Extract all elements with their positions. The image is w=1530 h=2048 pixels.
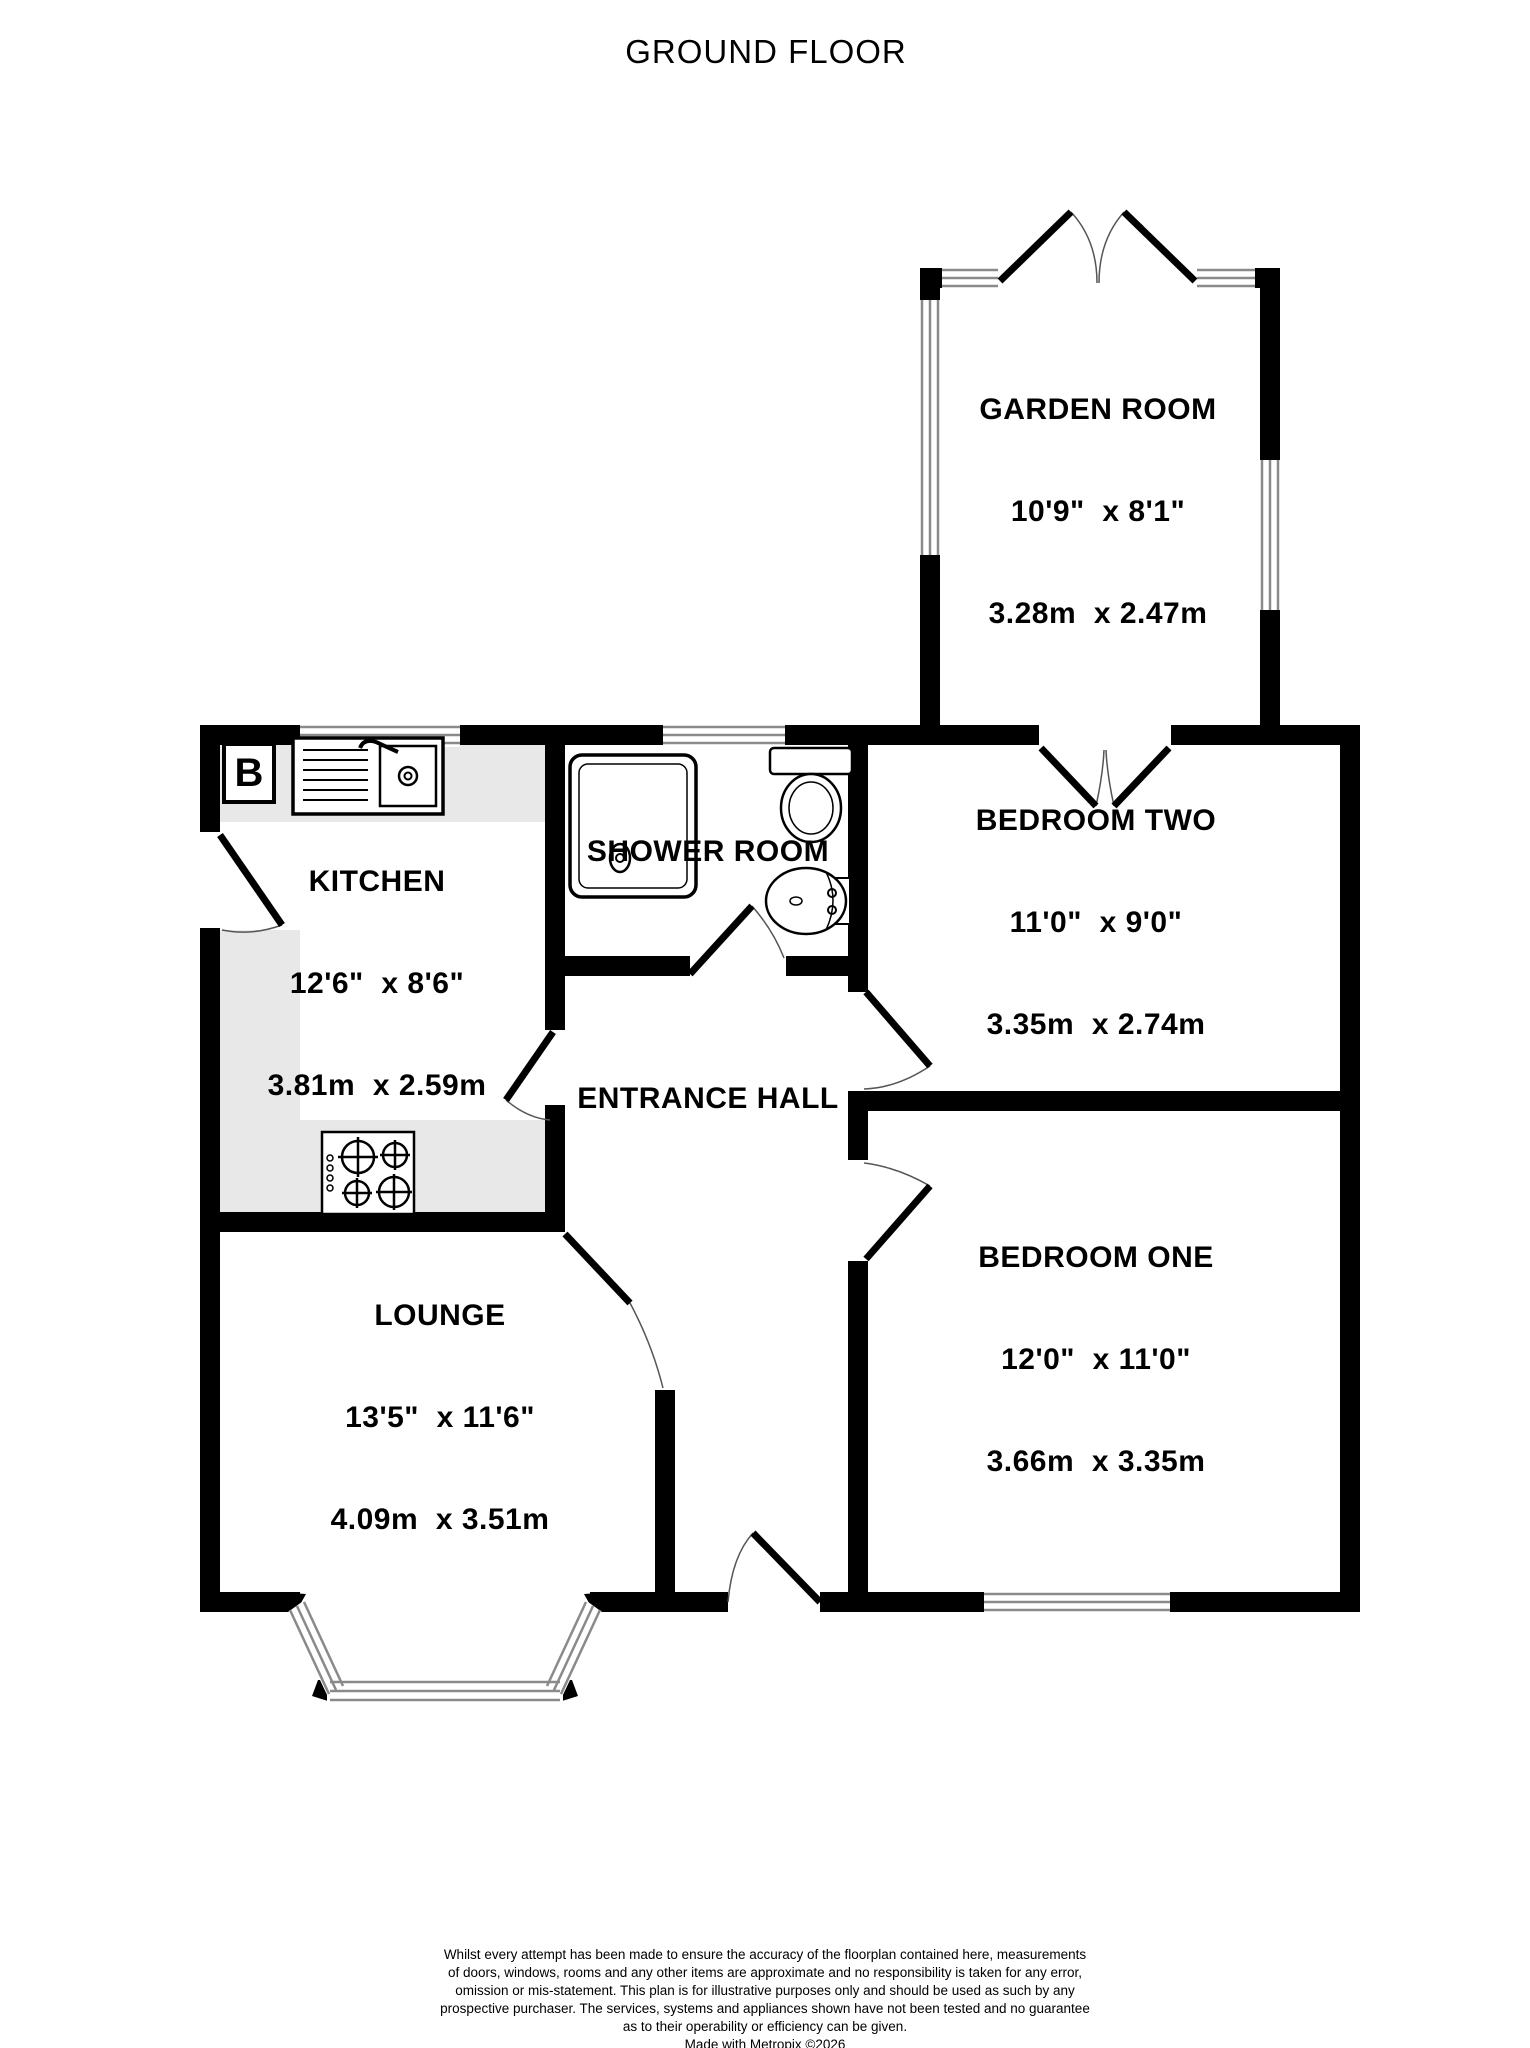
bedroom-two-door <box>864 992 930 1089</box>
room-name: SHOWER ROOM <box>587 835 829 869</box>
bedroom-one-door <box>864 1163 930 1259</box>
room-name: ENTRANCE HALL <box>577 1082 839 1116</box>
garden-room-french-doors <box>1000 212 1195 283</box>
room-label-shower-room: SHOWER ROOM <box>587 767 829 937</box>
boiler-label: B <box>222 742 276 804</box>
room-label-kitchen: KITCHEN 12'6" x 8'6" 3.81m x 2.59m <box>268 797 487 1171</box>
room-size-metric: 4.09m x 3.51m <box>331 1503 550 1537</box>
room-size-metric: 3.35m x 2.74m <box>976 1008 1216 1042</box>
room-size-imperial: 10'9" x 8'1" <box>979 495 1216 529</box>
garden-room-right-window <box>1258 460 1282 610</box>
room-size-metric: 3.28m x 2.47m <box>979 597 1216 631</box>
room-name: BEDROOM ONE <box>978 1241 1214 1275</box>
room-label-entrance-hall: ENTRANCE HALL <box>577 1014 839 1184</box>
page-title: GROUND FLOOR <box>625 33 907 71</box>
room-size-imperial: 13'5" x 11'6" <box>331 1401 550 1435</box>
lounge-door <box>565 1234 663 1388</box>
room-size-metric: 3.66m x 3.35m <box>978 1445 1214 1479</box>
bedroom-one-window <box>984 1590 1170 1614</box>
floorplan-canvas: GROUND FLOOR B GARDEN ROOM 10'9" x 8'1" … <box>0 0 1530 2048</box>
disclaimer: Whilst every attempt has been made to en… <box>0 1946 1530 2048</box>
entrance-door <box>728 1533 820 1602</box>
garden-room-top-right-window <box>1197 266 1255 290</box>
room-size-imperial: 12'0" x 11'0" <box>978 1343 1214 1377</box>
room-name: BEDROOM TWO <box>976 804 1216 838</box>
disclaimer-line: omission or mis-statement. This plan is … <box>0 1982 1530 2000</box>
room-size-imperial: 12'6" x 8'6" <box>268 967 487 1001</box>
bay-window <box>288 1599 602 1703</box>
garden-room-top-left-window <box>942 266 998 290</box>
room-size-imperial: 11'0" x 9'0" <box>976 906 1216 940</box>
room-label-garden-room: GARDEN ROOM 10'9" x 8'1" 3.28m x 2.47m <box>979 325 1216 699</box>
disclaimer-line: prospective purchaser. The services, sys… <box>0 2000 1530 2018</box>
disclaimer-line: of doors, windows, rooms and any other i… <box>0 1964 1530 1982</box>
garden-room-left-window <box>918 300 942 555</box>
room-label-bedroom-one: BEDROOM ONE 12'0" x 11'0" 3.66m x 3.35m <box>978 1173 1214 1547</box>
room-name: LOUNGE <box>331 1299 550 1333</box>
disclaimer-line: Whilst every attempt has been made to en… <box>0 1946 1530 1964</box>
disclaimer-line: as to their operability or efficiency ca… <box>0 2018 1530 2036</box>
shower-room-window <box>663 723 785 747</box>
room-label-bedroom-two: BEDROOM TWO 11'0" x 9'0" 3.35m x 2.74m <box>976 736 1216 1110</box>
room-name: GARDEN ROOM <box>979 393 1216 427</box>
room-name: KITCHEN <box>268 865 487 899</box>
room-size-metric: 3.81m x 2.59m <box>268 1069 487 1103</box>
room-label-lounge: LOUNGE 13'5" x 11'6" 4.09m x 3.51m <box>331 1231 550 1605</box>
disclaimer-line: Made with Metropix ©2026 <box>0 2036 1530 2048</box>
